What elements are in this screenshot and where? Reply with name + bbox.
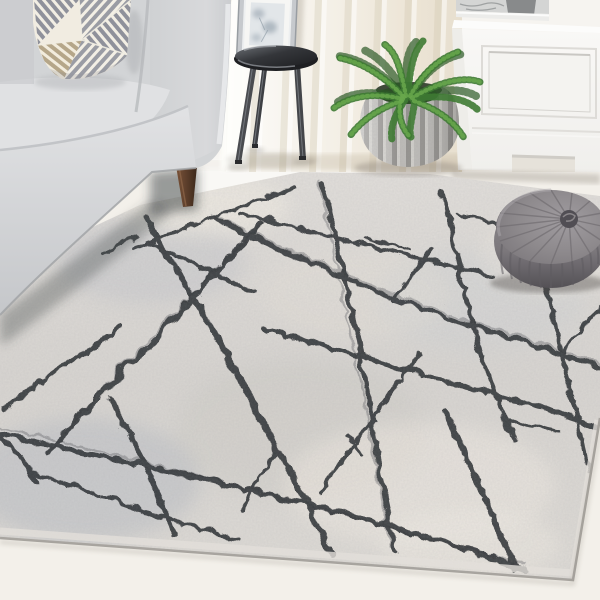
velvet-pouf: [490, 190, 600, 293]
product-photo: [0, 0, 600, 600]
cabinet: [452, 20, 600, 184]
